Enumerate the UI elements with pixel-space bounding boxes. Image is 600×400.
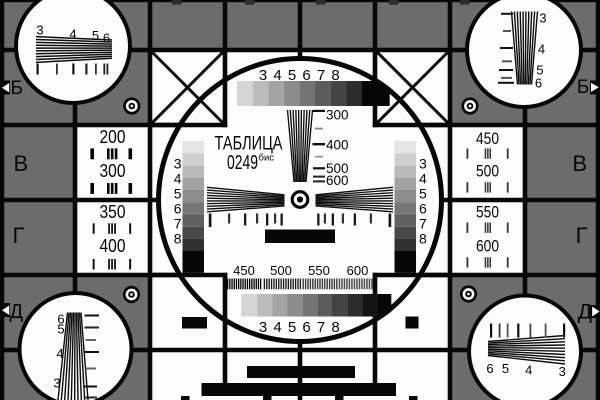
svg-text:550: 550 [476,203,499,222]
svg-text:4: 4 [56,346,63,361]
svg-text:4: 4 [273,319,281,336]
svg-text:600: 600 [347,263,369,278]
svg-text:6: 6 [174,201,182,217]
svg-text:5: 5 [502,361,509,376]
svg-text:500: 500 [476,162,499,181]
svg-text:Г: Г [13,223,25,248]
svg-text:0249: 0249 [227,151,258,174]
svg-text:6: 6 [486,361,493,376]
svg-text:500: 500 [270,263,292,278]
svg-text:3: 3 [53,376,60,391]
svg-text:3: 3 [174,156,182,172]
svg-text:3: 3 [259,319,267,336]
svg-text:6: 6 [302,319,310,336]
svg-text:7: 7 [174,216,182,232]
svg-text:Д: Д [10,301,24,323]
svg-text:600: 600 [326,173,349,188]
svg-text:Г: Г [576,223,588,248]
svg-text:Д: Д [578,301,592,324]
svg-text:8: 8 [419,231,427,247]
svg-text:350: 350 [100,202,126,222]
svg-text:4: 4 [525,363,532,378]
svg-text:3: 3 [36,23,43,38]
svg-text:6: 6 [419,201,427,217]
svg-text:5: 5 [174,186,182,202]
svg-text:В: В [14,151,29,176]
svg-text:3: 3 [559,364,566,379]
svg-text:6: 6 [103,30,110,45]
svg-text:В: В [572,151,587,176]
svg-text:3: 3 [419,156,427,172]
svg-text:7: 7 [419,216,427,232]
svg-text:400: 400 [326,138,349,153]
svg-text:4: 4 [419,171,427,187]
svg-text:Б: Б [11,78,23,99]
svg-text:6: 6 [535,75,542,90]
svg-text:4: 4 [538,41,545,56]
svg-text:400: 400 [100,236,126,256]
svg-text:300: 300 [326,107,349,122]
svg-text:450: 450 [476,129,499,148]
svg-text:8: 8 [174,231,182,247]
svg-text:5: 5 [92,28,99,43]
svg-text:7: 7 [317,319,325,336]
svg-text:600: 600 [476,237,499,256]
svg-text:5: 5 [57,322,64,337]
svg-text:300: 300 [100,161,126,181]
svg-text:Б: Б [577,77,589,98]
svg-text:450: 450 [233,263,255,278]
svg-text:бис: бис [259,153,275,164]
svg-text:4: 4 [69,26,76,41]
svg-text:4: 4 [174,171,182,187]
svg-text:8: 8 [331,319,339,336]
svg-text:5: 5 [288,319,296,336]
svg-text:200: 200 [100,127,126,147]
svg-text:3: 3 [539,11,546,26]
svg-text:550: 550 [308,263,330,278]
svg-text:5: 5 [419,186,427,202]
